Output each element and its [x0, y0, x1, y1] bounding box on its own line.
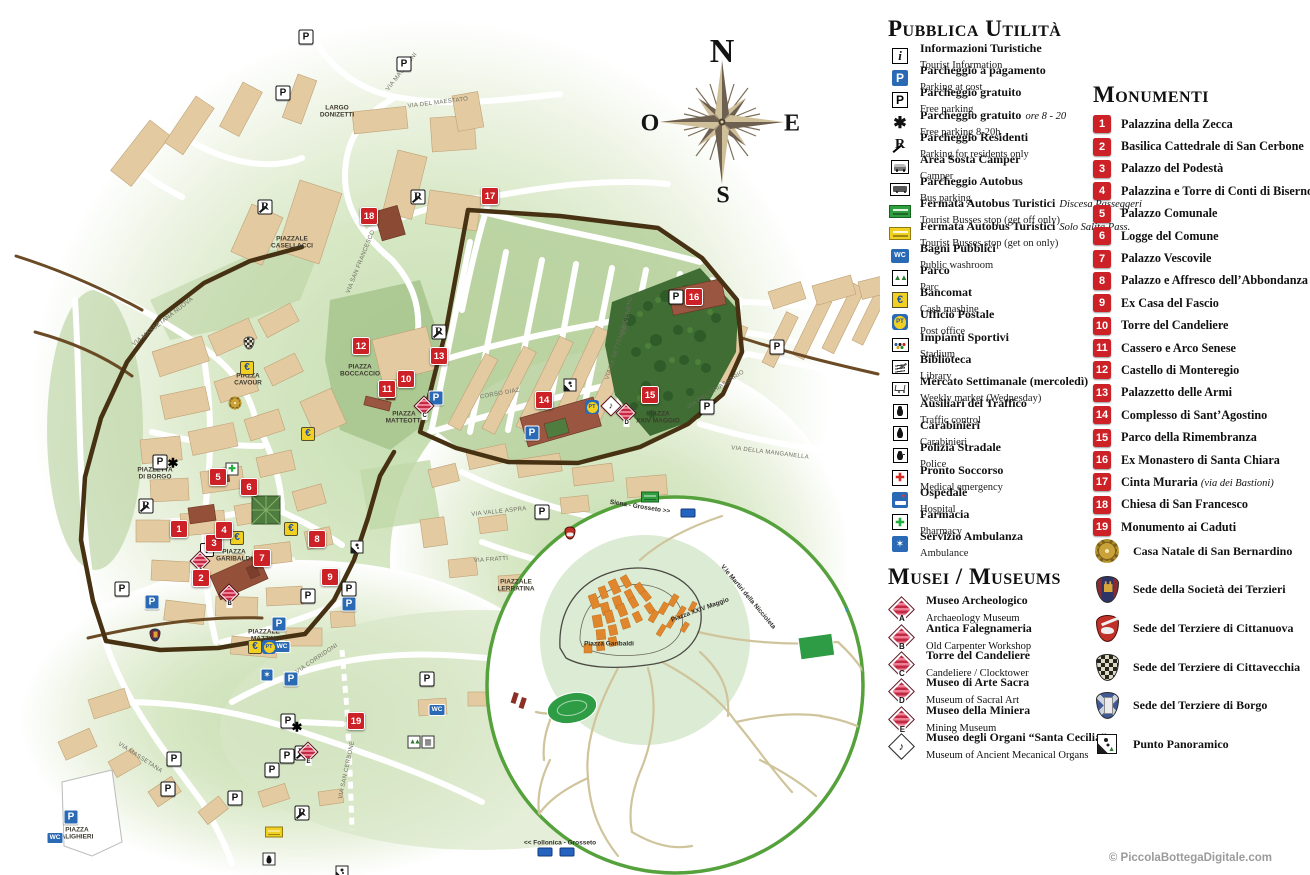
monument-number-badge: 5 — [1093, 205, 1111, 223]
public-utilities-legend: Pubblica Utilità i Informazioni Turistic… — [888, 16, 1106, 555]
copyright-text: © PiccolaBottegaDigitale.com — [1109, 852, 1272, 864]
map-pin: ✶ — [261, 669, 274, 682]
monument-number-badge: 18 — [1093, 496, 1111, 514]
map-pin: P — [284, 672, 299, 687]
legend-icon-glyph: ✱ — [893, 113, 906, 133]
legend-icon: WC — [891, 249, 909, 263]
monument-label: Palazzina e Torre di Conti di Biserno — [1121, 184, 1310, 198]
pin-glyph: PT — [264, 642, 275, 653]
monument-label: Ex Casa del Fascio — [1121, 296, 1219, 310]
tourist-map-page: 1 2 3 4 5 6 7 8 9 10 11 12 — [0, 0, 1310, 875]
legend-icon — [893, 426, 908, 441]
museum-label-en: Museum of Ancient Mecanical Organs — [926, 750, 1089, 761]
pin-glyph: WC — [277, 644, 288, 651]
pin-glyph: R — [435, 327, 443, 338]
pin-glyph: P — [269, 765, 276, 775]
map-pin: P — [161, 782, 176, 797]
monument-label: Logge del Comune — [1121, 229, 1219, 243]
pin-glyph: P — [303, 32, 310, 42]
map-pin: P — [342, 597, 357, 612]
emblem-row: Casa Natale di San Bernardino — [1093, 532, 1310, 571]
monument-label: Palazzina della Zecca — [1121, 117, 1233, 131]
compass-south-label: S — [716, 183, 729, 210]
legend-label-it: Fermata Autobus Turistici — [920, 196, 1055, 210]
legend-label-it: Parcheggio gratuito — [920, 85, 1021, 99]
legend-label-it: Carabinieri — [920, 418, 980, 432]
piazza-label: Piazza Alighieri — [61, 827, 94, 842]
map-pin: P — [525, 426, 540, 441]
pin-glyph: P — [171, 754, 178, 764]
map-pin — [681, 509, 696, 518]
pin-letter: B — [226, 601, 232, 608]
legend-icon — [892, 492, 908, 508]
map-pin: R — [432, 325, 447, 340]
emblem-label: Sede della Società dei Terzieri — [1133, 582, 1286, 597]
monument-label: Palazzo Comunale — [1121, 206, 1217, 220]
legend-icon — [893, 404, 908, 419]
monument-number-badge: 13 — [1093, 384, 1111, 402]
map-pin: ✱ — [168, 457, 179, 470]
map-marker: 12 — [352, 337, 370, 355]
legend-label-it: Ospedale — [920, 485, 967, 499]
legend-label-it: Servizio Ambulanza — [920, 529, 1023, 543]
pin-glyph: € — [234, 533, 240, 543]
map-pin: € — [301, 427, 315, 441]
map-pin: P — [770, 340, 785, 355]
map-pin: P — [299, 30, 314, 45]
pin-glyph: P — [673, 292, 680, 302]
map-pin: € — [248, 640, 262, 654]
map-pin: P — [167, 752, 182, 767]
legend-label-it: Impianti Sportivi — [920, 330, 1009, 344]
legend-icon: ✱ — [893, 113, 906, 133]
monument-label: Palazzetto delle Armi — [1121, 385, 1232, 399]
pin-glyph: P — [285, 716, 292, 726]
map-marker: 4 — [215, 521, 233, 539]
legend-icon: P — [892, 70, 908, 86]
emblem-label: Casa Natale di San Bernardino — [1133, 544, 1292, 559]
legend-icon-glyph: ▲▲ — [894, 273, 907, 282]
monument-row: 15 Parco della Rimembranza — [1093, 426, 1310, 448]
map-marker: 5 — [209, 468, 227, 486]
monument-row: 5 Palazzo Comunale — [1093, 203, 1310, 225]
map-pin — [336, 866, 349, 875]
public-utilities-title: Pubblica Utilità — [888, 16, 1106, 42]
monument-row: 6 Logge del Comune — [1093, 225, 1310, 247]
emblem-crest-icon — [1095, 539, 1119, 563]
map-pin: ✱ — [292, 721, 303, 734]
museum-row: A Museo Archeologico Archaeology Museum — [888, 596, 1108, 623]
map-marker: 11 — [378, 380, 396, 398]
map-pin: P — [228, 791, 243, 806]
pin-glyph: € — [252, 642, 258, 652]
emblems-legend: Casa Natale di San Bernardino Sede della… — [1093, 532, 1310, 764]
map-pin: WC — [47, 832, 64, 844]
map-pin: WC — [274, 641, 291, 653]
map-pin: R — [258, 200, 273, 215]
map-pin: R — [411, 190, 426, 205]
legend-label-it: Area Sosta Camper — [920, 152, 1020, 166]
pin-glyph: € — [288, 524, 294, 534]
map-pin — [229, 397, 242, 410]
monument-row: 4 Palazzina e Torre di Conti di Biserno — [1093, 180, 1310, 202]
map-pin: € — [284, 522, 298, 536]
pin-glyph: P — [433, 393, 440, 403]
map-pin: P — [272, 617, 287, 632]
legend-label-it: Parcheggio Residenti — [920, 130, 1028, 144]
pin-glyph: P — [276, 619, 283, 629]
monument-row: 3 Palazzo del Podestà — [1093, 158, 1310, 180]
piazza-label: Piazzale Casellacci — [271, 236, 313, 251]
map-marker: 13 — [430, 347, 448, 365]
emblem-crest-icon — [1097, 734, 1117, 754]
map-pin — [564, 379, 577, 392]
map-marker: 7 — [253, 549, 271, 567]
museum-letter: A — [897, 616, 905, 625]
monument-label: Basilica Cattedrale di San Cerbone — [1121, 139, 1304, 153]
pin-glyph: P — [774, 342, 781, 352]
map-pin: PT — [585, 400, 599, 414]
map-pin: PT — [262, 640, 276, 654]
legend-icon: ✚ — [892, 514, 908, 530]
legend-label-it: Farmacia — [920, 507, 969, 521]
map-pin — [538, 848, 553, 857]
monument-number-badge: 10 — [1093, 317, 1111, 335]
legend-label-it: Parco — [920, 263, 950, 277]
emblem-row: Sede del Terziere di Cittanuova — [1093, 609, 1310, 648]
monument-number-badge: 7 — [1093, 250, 1111, 268]
monument-row: 1 Palazzina della Zecca — [1093, 113, 1310, 135]
legend-label-it: Pronto Soccorso — [920, 463, 1003, 477]
monument-number-badge: 4 — [1093, 182, 1111, 200]
museum-label-it: Museo degli Organi “Santa Cecilia” — [926, 730, 1107, 745]
compass-east-label: E — [784, 111, 800, 138]
museum-diamond-icon: A — [889, 598, 913, 622]
monument-number-badge: 2 — [1093, 138, 1111, 156]
piazza-label: Piazza Boccaccio — [340, 364, 380, 379]
pin-glyph: P — [305, 591, 312, 601]
pin-glyph: P — [232, 793, 239, 803]
map-marker: 10 — [397, 370, 415, 388]
museum-row: Museo degli Organi “Santa Cecilia” Museu… — [888, 733, 1108, 760]
monument-row: 7 Palazzo Vescovile — [1093, 247, 1310, 269]
legend-icon-glyph: WC — [894, 252, 906, 259]
map-marker: 17 — [481, 187, 499, 205]
legend-label-it: Ufficio Postale — [920, 307, 994, 321]
emblem-label: Sede del Terziere di Cittavecchia — [1133, 660, 1300, 675]
map-pin: WC — [429, 704, 446, 716]
legend-icon-glyph: PT — [894, 316, 907, 329]
monument-number-badge: 3 — [1093, 160, 1111, 178]
piazza-label: Largo Donizetti — [320, 105, 354, 120]
museums-rows: A Museo Archeologico Archaeology Museum … — [888, 596, 1108, 760]
emblem-row: Sede del Terziere di Borgo — [1093, 686, 1310, 725]
pin-glyph: ▦ — [424, 738, 432, 746]
pin-glyph: P — [119, 584, 126, 594]
map-pin: P — [397, 57, 412, 72]
monuments-legend: Monumenti 1 Palazzina della Zecca 2 Basi… — [1093, 82, 1310, 538]
legend-label-it: Parcheggio Autobus — [920, 174, 1023, 188]
museum-label-it: Antica Falegnameria — [926, 621, 1032, 636]
emblem-label: Sede del Terziere di Cittanuova — [1133, 621, 1293, 636]
monument-row: 12 Castello di Monteregio — [1093, 359, 1310, 381]
map-pin — [351, 541, 364, 554]
pin-glyph: P — [149, 597, 156, 607]
legend-icon — [889, 227, 911, 240]
map-marker: 1 — [170, 520, 188, 538]
map-pin: P — [265, 763, 280, 778]
legend-icon: ✚ — [892, 470, 908, 486]
emblem-crest-icon — [1096, 692, 1119, 719]
emblem-crest-icon — [1096, 615, 1119, 642]
pin-letter: D — [623, 420, 629, 427]
map-pin: P — [115, 582, 130, 597]
monument-row: 9 Ex Casa del Fascio — [1093, 292, 1310, 314]
museum-diamond-icon: D — [889, 680, 913, 704]
monument-number-badge: 17 — [1093, 473, 1111, 491]
monument-label: Ex Monastero di Santa Chiara — [1121, 453, 1280, 467]
map-pin — [641, 492, 659, 503]
pin-glyph: ✶ — [263, 671, 271, 680]
emblem-crest-icon — [1096, 654, 1119, 681]
emblem-row: Sede del Terziere di Cittavecchia — [1093, 648, 1310, 687]
pin-glyph: P — [284, 751, 291, 761]
map-marker: 14 — [535, 391, 553, 409]
monument-row: 14 Complesso di Sant’Agostino — [1093, 404, 1310, 426]
pin-glyph: WC — [50, 835, 61, 842]
map-pin — [265, 827, 283, 838]
museum-letter: B — [897, 643, 905, 652]
monument-note: (via dei Bastioni) — [1201, 478, 1274, 489]
legend-label-it: Parcheggio a pagamento — [920, 63, 1046, 77]
pin-glyph: R — [298, 808, 306, 819]
pin-glyph: P — [401, 59, 408, 69]
compass-north-label: N — [710, 33, 735, 71]
legend-icon: ▲▲ — [892, 270, 908, 286]
map-pin: P — [153, 455, 168, 470]
monument-number-badge: 6 — [1093, 227, 1111, 245]
pin-glyph: P — [704, 402, 711, 412]
map-pin: P — [700, 400, 715, 415]
monument-row: 13 Palazzetto delle Armi — [1093, 382, 1310, 404]
pin-glyph: P — [288, 674, 295, 684]
pin-glyph: R — [261, 202, 269, 213]
pin-glyph: PT — [587, 402, 598, 413]
map-pin: ▲▲ — [408, 736, 421, 749]
pin-glyph: P — [346, 599, 353, 609]
legend-icon — [889, 205, 911, 218]
legend-icon: R — [892, 136, 909, 153]
inset-label: Piazza Garibaldi — [584, 641, 634, 648]
pin-glyph: ▲▲ — [409, 739, 419, 746]
museum-row: B Antica Falegnameria Old Carpenter Work… — [888, 623, 1108, 650]
museum-letter: D — [897, 698, 905, 707]
legend-icon-glyph: P — [896, 71, 904, 85]
legend-icon-glyph: R — [895, 137, 905, 153]
museums-title: Musei / Museums — [888, 564, 1108, 590]
pin-glyph: € — [244, 363, 250, 373]
pin-glyph: R — [414, 192, 422, 203]
map-pin: R — [295, 806, 310, 821]
legend-icon — [893, 448, 908, 463]
map-marker: 8 — [308, 530, 326, 548]
map-pin: ▦ — [422, 736, 435, 749]
monument-label: Torre del Candeliere — [1121, 318, 1228, 332]
museum-diamond-icon: C — [889, 652, 913, 676]
pin-glyph: ✱ — [168, 457, 179, 470]
legend-icon — [892, 382, 909, 396]
map-marker: 18 — [360, 207, 378, 225]
map-pin — [560, 848, 575, 857]
museum-label-it: Torre del Candeliere — [926, 648, 1030, 663]
public-utilities-rows: i Informazioni Turistiche Tourist Inform… — [888, 45, 1106, 555]
legend-label-it: Bancomat — [920, 285, 972, 299]
map-pin: P — [280, 749, 295, 764]
compass-west-label: O — [641, 111, 660, 138]
legend-icon-glyph: ✶ — [896, 539, 904, 550]
monument-number-badge: 9 — [1093, 294, 1111, 312]
museum-label-it: Museo della Miniera — [926, 703, 1030, 718]
map-pin: ✚ — [226, 463, 239, 476]
museum-label-it: Museo di Arte Sacra — [926, 675, 1029, 690]
museum-letter: E — [898, 725, 905, 734]
museums-legend: Musei / Museums A Museo Archeologico Arc… — [888, 564, 1108, 760]
museum-row: E Museo della Miniera Mining Museum — [888, 706, 1108, 733]
legend-icon — [891, 160, 909, 174]
legend-row: ✶ Servizio Ambulanza Ambulance — [888, 533, 1106, 555]
monument-label: Parco della Rimembranza — [1121, 430, 1257, 444]
legend-label-it: Informazioni Turistiche — [920, 41, 1042, 55]
legend-label-it: Parcheggio gratuito — [920, 108, 1021, 122]
piazza-label: Piazza XXIV Maggio — [636, 411, 680, 426]
pin-glyph: P — [539, 507, 546, 517]
monument-number-badge: 1 — [1093, 115, 1111, 133]
map-pin: P — [535, 505, 550, 520]
pin-glyph: WC — [432, 707, 443, 714]
legend-icon: i — [892, 48, 908, 64]
map-marker: 9 — [321, 568, 339, 586]
legend-label-it: Mercato Settimanale (mercoledì) — [920, 374, 1088, 388]
legend-icon-glyph: ✚ — [895, 516, 904, 529]
monument-label: Cinta Muraria — [1121, 475, 1198, 489]
map-marker: 6 — [240, 478, 258, 496]
monument-label: Cassero e Arco Senese — [1121, 341, 1236, 355]
monument-row: 18 Chiesa di San Francesco — [1093, 494, 1310, 516]
map-marker: 16 — [685, 288, 703, 306]
monument-number-badge: 15 — [1093, 429, 1111, 447]
map-pin: P — [145, 595, 160, 610]
map-pin: R — [139, 499, 154, 514]
monument-label: Chiesa di San Francesco — [1121, 497, 1248, 511]
emblem-label: Sede del Terziere di Borgo — [1133, 698, 1267, 713]
emblem-row: Sede della Società dei Terzieri — [1093, 571, 1310, 610]
legend-icon: ✶ — [892, 536, 908, 552]
monuments-rows: 1 Palazzina della Zecca 2 Basilica Catte… — [1093, 113, 1310, 538]
pin-glyph: € — [305, 429, 311, 439]
map-pin: P — [342, 582, 357, 597]
pin-glyph: P — [157, 457, 164, 467]
museum-letter: C — [897, 670, 905, 679]
legend-label-it: Fermata Autobus Turistici — [920, 219, 1055, 233]
map-pin — [263, 853, 276, 866]
monument-number-badge: 14 — [1093, 406, 1111, 424]
museum-diamond-icon: E — [889, 707, 913, 731]
pin-letter: E — [305, 759, 311, 766]
legend-icon — [892, 338, 909, 352]
monument-row: 2 Basilica Cattedrale di San Cerbone — [1093, 135, 1310, 157]
pin-glyph: P — [424, 674, 431, 684]
emblem-label: Punto Panoramico — [1133, 737, 1229, 752]
museum-row: D Museo di Arte Sacra Museum of Sacral A… — [888, 678, 1108, 705]
monument-number-badge: 8 — [1093, 272, 1111, 290]
legend-icon: € — [892, 292, 908, 308]
legend-label-note: ore 8 - 20 — [1025, 111, 1066, 122]
pin-glyph: P — [68, 812, 75, 822]
monument-number-badge: 11 — [1093, 339, 1111, 357]
emblem-crest-icon — [1096, 576, 1119, 603]
map-pin: P — [276, 86, 291, 101]
legend-label-it: Bagni Pubblici — [920, 241, 996, 255]
pin-glyph: ✚ — [228, 465, 236, 474]
pin-glyph: ♪ — [609, 402, 614, 411]
monument-row: 8 Palazzo e Affresco dell’Abbondanza — [1093, 270, 1310, 292]
pin-glyph: ✱ — [292, 721, 303, 734]
map-pin: P — [669, 290, 684, 305]
museum-row: C Torre del Candeliere Candeliere / Cloc… — [888, 651, 1108, 678]
map-marker: 19 — [347, 712, 365, 730]
legend-label-it: Ausiliari del Traffico — [920, 396, 1027, 410]
map-pin: P — [301, 589, 316, 604]
monument-row: 11 Cassero e Arco Senese — [1093, 337, 1310, 359]
map-pin: € — [240, 361, 254, 375]
legend-icon-glyph: € — [897, 294, 903, 306]
monument-row: 17 Cinta Muraria (via dei Bastioni) — [1093, 471, 1310, 493]
pin-letter: C — [421, 413, 427, 420]
piazza-label: Piazzale Lerratina — [497, 579, 534, 594]
monument-row: 16 Ex Monastero di Santa Chiara — [1093, 449, 1310, 471]
map-pin: P — [64, 810, 79, 825]
monument-label: Palazzo del Podestà — [1121, 161, 1223, 175]
museum-diamond-icon — [889, 735, 913, 759]
legend-icon — [892, 360, 909, 374]
legend-icon-glyph: i — [898, 48, 902, 64]
legend-icon — [890, 183, 910, 196]
pin-glyph: R — [142, 501, 150, 512]
legend-label-it: Biblioteca — [920, 352, 971, 366]
map-marker: 15 — [641, 386, 659, 404]
monument-row: 10 Torre del Candeliere — [1093, 315, 1310, 337]
museum-diamond-icon: B — [889, 625, 913, 649]
legend-label-en: Ambulance — [920, 548, 968, 559]
monument-label: Castello di Monteregio — [1121, 363, 1239, 377]
monument-number-badge: 16 — [1093, 451, 1111, 469]
legend-icon-glyph: ✚ — [895, 471, 904, 484]
emblem-row: Punto Panoramico — [1093, 725, 1310, 764]
pin-glyph: P — [346, 584, 353, 594]
pin-glyph: P — [529, 428, 536, 438]
legend-icon-glyph: P — [896, 93, 904, 107]
legend-icon: PT — [892, 314, 908, 330]
map-marker: 2 — [192, 569, 210, 587]
monuments-title: Monumenti — [1093, 82, 1310, 108]
monument-label: Palazzo e Affresco dell’Abbondanza — [1121, 273, 1308, 287]
piazza-label: Piazza Matteotti — [386, 411, 423, 426]
inset-label: << Follonica - Grosseto — [524, 840, 596, 847]
legend-icon: P — [892, 92, 908, 108]
pin-glyph: P — [165, 784, 172, 794]
monument-number-badge: 12 — [1093, 361, 1111, 379]
monument-label: Palazzo Vescovile — [1121, 251, 1211, 265]
